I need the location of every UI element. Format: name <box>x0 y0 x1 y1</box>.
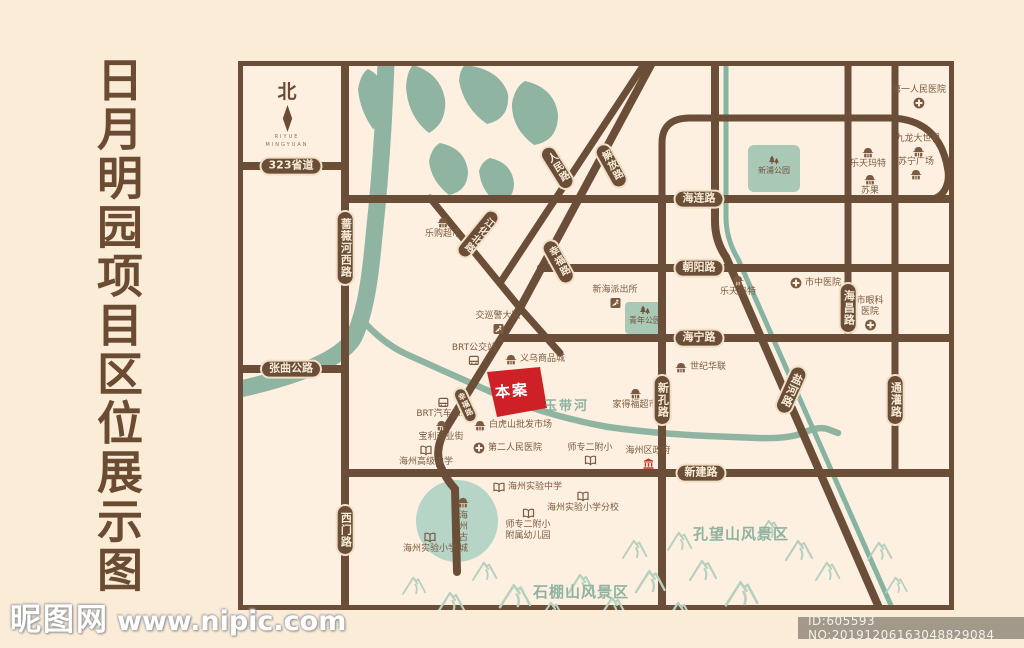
tree-icon <box>639 305 651 315</box>
shop-icon <box>912 146 924 157</box>
road-label-323: 323省道 <box>260 157 323 176</box>
school-icon <box>577 491 589 502</box>
poi-first-peoples-hospital: 第一人民医院 <box>892 85 946 109</box>
shop-icon <box>675 362 687 373</box>
poi-lotte-mart-mid: 乐天玛特 <box>720 275 756 298</box>
hospital-icon <box>864 319 876 331</box>
watermark-logo: 昵图网 <box>10 594 109 639</box>
school-icon <box>522 508 534 519</box>
hospital-icon <box>473 442 485 454</box>
bus-icon <box>437 397 449 408</box>
shop-icon <box>864 174 876 185</box>
shop-icon <box>910 169 922 180</box>
poi-baoli-street: 宝利商业街 <box>418 420 463 443</box>
poi-kindergarten: 师专二附小附属幼儿园 <box>505 508 550 542</box>
shop-icon <box>629 388 641 399</box>
road-label-haining: 海宁路 <box>674 329 725 348</box>
river-label-yudaihe: 玉带河 <box>544 395 589 414</box>
poi-jiulong-world: 九龙大世界 <box>895 134 940 157</box>
poi-legou-market: 乐购超市 <box>425 217 461 240</box>
school-icon <box>493 482 505 493</box>
road-label-zhangqu: 张曲公路 <box>260 360 322 379</box>
gucheng-label: 海州古城 <box>456 497 469 554</box>
shop-icon <box>437 217 449 228</box>
compass: 北 RIYUE MINGYUAN <box>256 77 318 149</box>
poi-xinhai-police: 新海派出所 <box>592 285 637 309</box>
road-label-qiangwei: 蔷薇河西路 <box>336 210 355 286</box>
tree-icon <box>768 155 780 165</box>
area-label-kongwangshan: 孔望山风景区 <box>693 523 789 544</box>
shop-icon <box>457 497 469 508</box>
bus-icon <box>468 355 480 366</box>
north-label: 北 <box>256 77 318 104</box>
poster: 日月明园项目区位展示图 <box>0 0 1024 648</box>
road-label-hailian: 海连路 <box>674 190 725 209</box>
watermark-url: www.nipic.com <box>117 606 346 637</box>
shop-icon <box>474 420 486 431</box>
hospital-icon <box>913 97 925 109</box>
poster-title: 日月明园项目区位展示图 <box>94 56 140 595</box>
poi-suguo: 苏果 <box>861 174 879 197</box>
poi-gaoji-school: 海州高级中学 <box>399 445 453 468</box>
road-label-xinkong: 新孔路 <box>653 374 672 426</box>
poi-shizhong-hospital: 市中医院 <box>790 277 841 289</box>
road-label-ximen: 西门路 <box>336 504 355 556</box>
road-label-haichang: 海昌路 <box>839 282 858 334</box>
watermark-id-text: ID:605593 NO:20191206163048829084 <box>808 614 1024 642</box>
shop-icon <box>732 275 744 286</box>
police-icon <box>492 323 504 335</box>
school-icon <box>584 455 596 466</box>
poi-suning-plaza: 苏宁广场 <box>898 157 934 180</box>
shop-icon <box>862 147 874 158</box>
shop-icon <box>435 420 447 431</box>
road-label-tongguan: 通灌路 <box>886 374 905 426</box>
poi-shizhuaner-school: 师专二附小 <box>567 443 612 466</box>
brand-line2: MINGYUAN <box>256 141 318 149</box>
shop-icon <box>505 354 517 365</box>
hospital-icon <box>790 277 802 289</box>
site-label: 本案 <box>494 379 530 403</box>
school-icon <box>420 445 432 456</box>
poi-lotte-mart-ne: 乐天玛特 <box>850 147 886 170</box>
poi-shiyan-branch-school: 海州实验小学分校 <box>547 491 619 514</box>
poi-yiwu-city: 义乌商品城 <box>505 354 565 365</box>
watermark-nipic: 昵图网 www.nipic.com <box>10 594 346 639</box>
location-map: 北 RIYUE MINGYUAN 323省道 张曲公路 海连路 朝阳路 海宁路 … <box>238 61 954 610</box>
area-label-shipengshan: 石棚山风景区 <box>533 581 629 602</box>
watermark-id-bar: ID:605593 NO:20191206163048829084 <box>798 617 1024 639</box>
poi-shiyan-primary-school: 海州实验小学 <box>403 532 457 555</box>
school-icon <box>424 532 436 543</box>
poi-traffic-police: 交巡警大队 <box>475 311 520 335</box>
poi-yanke-hospital: 市眼科医院 <box>856 296 883 331</box>
xinpu-park-label: 新浦公园 <box>758 155 790 176</box>
poi-second-hospital: 第二人民医院 <box>473 442 542 454</box>
road-label-xinjian: 新建路 <box>676 464 727 483</box>
project-site: 本案 <box>485 368 547 414</box>
poi-shijihualian: 世纪华联 <box>675 362 726 373</box>
road-label-chaoyang: 朝阳路 <box>674 259 725 278</box>
poi-brt-station: BRT公交站 <box>452 343 496 366</box>
poi-jiadefu: 家得福超市 <box>612 388 657 411</box>
poi-baihushan-market: 白虎山批发市场 <box>474 420 552 431</box>
compass-needle-icon <box>282 105 293 132</box>
brand-line1: RIYUE <box>256 133 318 141</box>
government-icon <box>642 458 654 469</box>
police-icon <box>609 297 621 309</box>
poi-district-government: 海州区政府 <box>625 446 670 469</box>
